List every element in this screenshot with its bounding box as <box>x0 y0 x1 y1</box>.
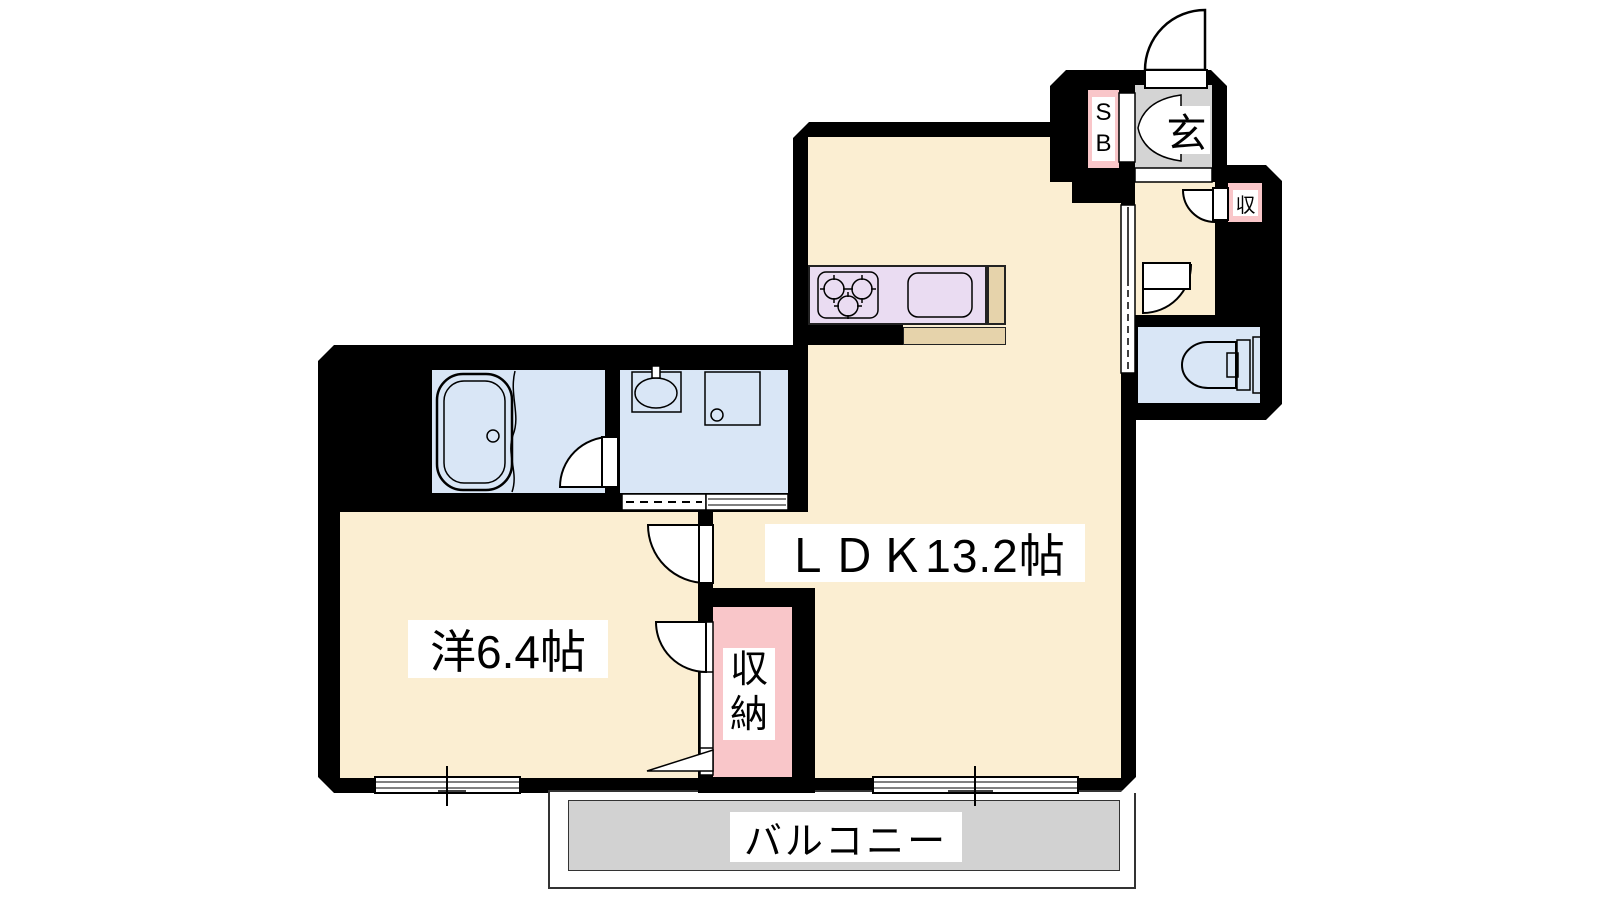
western-room-label: 洋6.4帖 <box>408 620 608 678</box>
closet-label: 収納 <box>723 648 775 740</box>
floor-plan: ＬＤＫ13.2帖 洋6.4帖 収納 バルコニー 玄 SB 収 <box>0 0 1600 900</box>
ldk-balcony-window <box>873 766 1078 806</box>
toilet <box>1182 337 1264 393</box>
kitchen-sink <box>908 273 972 317</box>
gas-stove <box>818 272 878 319</box>
toilet-door-arc <box>1143 263 1191 313</box>
bathroom-door-arc <box>560 437 618 487</box>
genkan-label: 玄 <box>1163 106 1210 154</box>
hall-closet-label: 収 <box>1233 190 1258 216</box>
genkan-sill <box>1135 168 1212 182</box>
washroom-sliding-door <box>622 494 788 510</box>
shoe-box-door-strip <box>1119 93 1135 162</box>
shoe-box-label: SB <box>1092 97 1115 161</box>
western-room-door-arc <box>648 525 713 583</box>
closet-door <box>647 622 713 775</box>
western-room-window <box>375 766 520 806</box>
washbasin <box>632 366 681 412</box>
balcony-label: バルコニー <box>730 812 962 862</box>
entry-door-arc <box>1145 10 1207 88</box>
hall-closet-door-arc <box>1183 188 1228 222</box>
hallway-sliding-door <box>1121 205 1135 373</box>
washing-machine-pan <box>705 372 760 425</box>
bathtub <box>437 374 512 490</box>
fixtures-and-doors-layer <box>0 0 1600 900</box>
ldk-room-label: ＬＤＫ13.2帖 <box>765 524 1085 582</box>
